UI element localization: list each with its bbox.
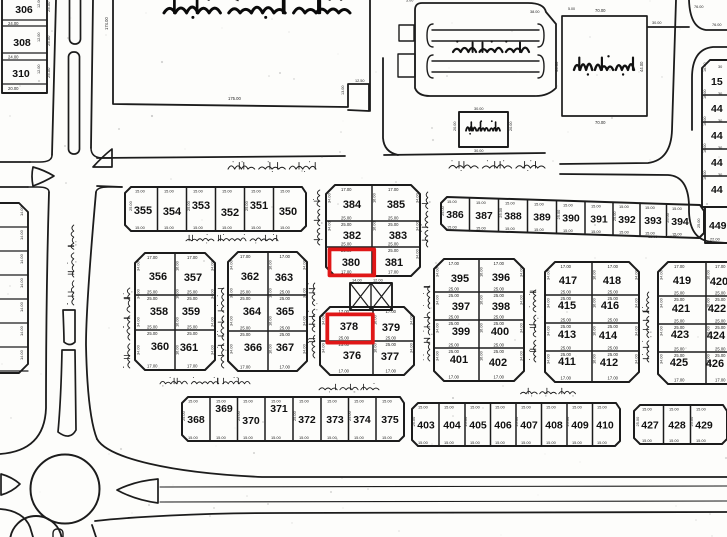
svg-text:15.00: 15.00 [243, 435, 254, 440]
svg-text:25.00: 25.00 [674, 353, 685, 358]
svg-text:25.00: 25.00 [128, 200, 133, 211]
svg-text:25.00: 25.00 [386, 342, 397, 347]
svg-text:401: 401 [450, 354, 468, 366]
svg-text:363: 363 [275, 272, 293, 284]
svg-text:376: 376 [343, 350, 361, 362]
svg-text:308: 308 [13, 37, 31, 49]
svg-text:34.00: 34.00 [302, 343, 307, 354]
svg-text:17.00: 17.00 [147, 364, 158, 369]
svg-text:16.00: 16.00 [592, 269, 597, 280]
svg-text:366: 366 [244, 342, 262, 354]
svg-text:30.00: 30.00 [474, 149, 484, 153]
svg-text:30.00: 30.00 [652, 21, 662, 25]
svg-text:30: 30 [718, 119, 722, 123]
svg-text:25.00: 25.00 [339, 336, 350, 341]
svg-text:16.00: 16.00 [175, 288, 180, 299]
svg-text:25.00: 25.00 [240, 326, 251, 331]
svg-text:368: 368 [187, 414, 205, 426]
svg-text:25.00: 25.00 [449, 315, 460, 320]
svg-text:374: 374 [353, 414, 371, 426]
svg-text:15.00: 15.00 [354, 399, 365, 404]
svg-text:15.00: 15.00 [645, 205, 656, 210]
svg-text:15.00: 15.00 [642, 438, 653, 443]
svg-text:25.00: 25.00 [689, 416, 694, 427]
svg-text:34.00: 34.00 [229, 287, 234, 298]
svg-text:16.00: 16.00 [703, 170, 707, 180]
svg-text:34.00: 34.00 [409, 314, 414, 325]
svg-text:25.00: 25.00 [347, 410, 352, 421]
svg-text:383: 383 [389, 230, 407, 242]
svg-text:30: 30 [718, 92, 722, 96]
svg-text:15.00: 15.00 [546, 405, 557, 410]
svg-text:310: 310 [12, 68, 30, 80]
svg-text:44: 44 [711, 103, 723, 115]
svg-text:421: 421 [672, 303, 690, 315]
svg-text:25.00: 25.00 [187, 296, 198, 301]
svg-text:34.00: 34.00 [546, 297, 551, 308]
svg-text:17.00: 17.00 [561, 376, 572, 381]
svg-text:15.00: 15.00 [299, 435, 310, 440]
svg-text:17.00: 17.00 [280, 365, 291, 370]
svg-text:17.00: 17.00 [608, 264, 619, 269]
svg-text:395: 395 [451, 273, 469, 285]
svg-text:34.00: 34.00 [302, 315, 307, 326]
svg-text:34.00: 34.00 [634, 353, 639, 364]
svg-text:76.00: 76.00 [712, 23, 722, 27]
svg-text:396: 396 [492, 272, 510, 284]
svg-text:359: 359 [182, 306, 200, 318]
svg-text:22.00: 22.00 [710, 237, 721, 242]
svg-text:17.00: 17.00 [449, 375, 460, 380]
svg-text:25.00: 25.00 [187, 290, 198, 295]
svg-text:12.00: 12.00 [37, 32, 41, 42]
svg-text:417: 417 [559, 275, 577, 287]
svg-text:25.00: 25.00 [411, 416, 416, 427]
svg-text:44.00: 44.00 [639, 61, 644, 72]
svg-text:24.00: 24.00 [8, 21, 19, 26]
svg-text:14.00: 14.00 [19, 301, 24, 312]
svg-text:25.00: 25.00 [147, 290, 158, 295]
svg-text:25.00: 25.00 [147, 331, 158, 336]
svg-text:17.00: 17.00 [386, 309, 397, 314]
svg-text:34.00: 34.00 [435, 322, 440, 333]
svg-text:14.00: 14.00 [352, 278, 363, 283]
svg-text:16.00: 16.00 [706, 325, 711, 336]
svg-text:34.00: 34.00 [519, 322, 524, 333]
svg-text:25.00: 25.00 [292, 410, 297, 421]
svg-text:25.00: 25.00 [498, 207, 503, 218]
svg-text:25.00: 25.00 [341, 216, 352, 221]
svg-text:15.00: 15.00 [251, 225, 262, 230]
svg-text:15.00: 15.00 [444, 440, 455, 445]
svg-text:377: 377 [381, 351, 399, 363]
svg-text:15.00: 15.00 [470, 405, 481, 410]
svg-text:15.00: 15.00 [534, 227, 545, 232]
svg-text:34.00: 34.00 [327, 220, 332, 231]
svg-text:16.00: 16.00 [268, 343, 273, 354]
svg-text:362: 362 [241, 271, 259, 283]
svg-text:44.00: 44.00 [554, 61, 559, 72]
svg-text:25.00: 25.00 [449, 321, 460, 326]
svg-text:350: 350 [279, 206, 297, 218]
svg-text:17.00: 17.00 [715, 264, 726, 269]
svg-text:14.00: 14.00 [19, 277, 24, 288]
svg-text:369: 369 [215, 403, 233, 415]
svg-text:14.00: 14.00 [19, 325, 24, 336]
svg-text:25.00: 25.00 [388, 248, 399, 253]
svg-text:365: 365 [276, 306, 294, 318]
svg-text:15.00: 15.00 [327, 435, 338, 440]
svg-text:16.00: 16.00 [706, 269, 711, 280]
svg-text:34.00: 34.00 [659, 269, 664, 280]
svg-text:16.00: 16.00 [706, 353, 711, 364]
svg-text:449: 449 [709, 220, 727, 232]
svg-text:17.00: 17.00 [674, 378, 685, 383]
svg-text:358: 358 [150, 306, 168, 318]
svg-text:34.00: 34.00 [136, 316, 141, 327]
svg-text:25.00: 25.00 [635, 416, 640, 427]
svg-text:25.00: 25.00 [561, 324, 572, 329]
svg-text:25.00: 25.00 [463, 416, 468, 427]
svg-text:356: 356 [149, 271, 167, 283]
svg-text:15.00: 15.00 [135, 225, 146, 230]
svg-text:25.00: 25.00 [280, 326, 291, 331]
svg-text:25.00: 25.00 [388, 242, 399, 247]
svg-text:390: 390 [562, 212, 580, 224]
svg-text:15.00: 15.00 [216, 435, 227, 440]
svg-text:15.00: 15.00 [619, 230, 630, 235]
svg-text:34.00: 34.00 [415, 248, 420, 259]
svg-text:379: 379 [382, 322, 400, 334]
svg-text:427: 427 [641, 420, 659, 432]
svg-text:34.00: 34.00 [519, 350, 524, 361]
svg-text:423: 423 [671, 329, 689, 341]
svg-text:25.00: 25.00 [494, 293, 505, 298]
svg-text:387: 387 [475, 210, 493, 222]
svg-text:16.00: 16.00 [706, 297, 711, 308]
svg-text:16.00: 16.00 [703, 62, 707, 72]
svg-text:15.00: 15.00 [222, 225, 233, 230]
svg-text:16.00: 16.00 [592, 297, 597, 308]
svg-text:378: 378 [340, 321, 358, 333]
svg-text:34.00: 34.00 [136, 260, 141, 271]
svg-text:15.00: 15.00 [418, 440, 429, 445]
svg-text:25.00: 25.00 [715, 347, 726, 352]
svg-text:17.00: 17.00 [608, 376, 619, 381]
svg-text:15.00: 15.00 [505, 226, 516, 231]
svg-text:15.00: 15.00 [188, 399, 199, 404]
svg-text:15.00: 15.00 [572, 440, 583, 445]
svg-text:17.00: 17.00 [339, 369, 350, 374]
svg-text:34.00: 34.00 [415, 192, 420, 203]
svg-text:14.00: 14.00 [19, 229, 24, 240]
svg-text:12.50: 12.50 [355, 79, 365, 83]
svg-text:25.00: 25.00 [494, 315, 505, 320]
svg-text:25.00: 25.00 [715, 353, 726, 358]
svg-text:13.00: 13.00 [341, 85, 345, 95]
svg-text:15.00: 15.00 [271, 399, 282, 404]
svg-text:375: 375 [381, 414, 399, 426]
svg-text:16.00: 16.00 [703, 89, 707, 99]
svg-text:306: 306 [15, 4, 33, 16]
svg-text:34.00: 34.00 [229, 259, 234, 270]
svg-text:370: 370 [242, 415, 260, 427]
svg-text:14.00: 14.00 [19, 253, 24, 264]
svg-text:34.00: 34.00 [321, 314, 326, 325]
svg-text:20.00: 20.00 [8, 86, 19, 91]
svg-text:25.00: 25.00 [674, 297, 685, 302]
svg-text:17.00: 17.00 [147, 255, 158, 260]
svg-text:25.00: 25.00 [608, 318, 619, 323]
svg-text:15.00: 15.00 [505, 201, 516, 206]
svg-text:15.00: 15.00 [696, 438, 707, 443]
svg-text:409: 409 [571, 420, 589, 432]
svg-text:407: 407 [520, 420, 538, 432]
svg-text:372: 372 [298, 414, 316, 426]
svg-text:16.00: 16.00 [372, 220, 377, 231]
svg-text:17.00: 17.00 [494, 261, 505, 266]
svg-text:25.00: 25.00 [440, 205, 445, 216]
svg-text:17.00: 17.00 [674, 264, 685, 269]
svg-text:25.00: 25.00 [561, 296, 572, 301]
svg-text:16.00: 16.00 [175, 344, 180, 355]
svg-text:25.00: 25.00 [280, 332, 291, 337]
svg-text:17.00: 17.00 [449, 261, 460, 266]
svg-text:34.00: 34.00 [321, 342, 326, 353]
svg-text:15.00: 15.00 [164, 225, 175, 230]
svg-text:34.00: 34.00 [302, 287, 307, 298]
svg-text:392: 392 [618, 214, 636, 226]
svg-text:25.00: 25.00 [665, 212, 670, 223]
svg-text:25.00: 25.00 [449, 343, 460, 348]
svg-text:15.00: 15.00 [669, 407, 680, 412]
svg-text:25.00: 25.00 [674, 291, 685, 296]
svg-text:357: 357 [184, 272, 202, 284]
svg-text:34.00: 34.00 [435, 350, 440, 361]
svg-text:16.00: 16.00 [592, 353, 597, 364]
svg-text:25.00: 25.00 [240, 290, 251, 295]
svg-text:17.00: 17.00 [715, 378, 726, 383]
svg-text:34.00: 34.00 [229, 343, 234, 354]
svg-text:25.00: 25.00 [561, 352, 572, 357]
svg-text:15.00: 15.00 [216, 399, 227, 404]
svg-text:16.00: 16.00 [372, 192, 377, 203]
svg-text:15.00: 15.00 [597, 405, 608, 410]
svg-text:14.00: 14.00 [19, 205, 24, 216]
svg-text:419: 419 [673, 275, 691, 287]
svg-text:25.00: 25.00 [240, 332, 251, 337]
svg-text:389: 389 [533, 212, 551, 224]
svg-text:15.00: 15.00 [418, 405, 429, 410]
svg-text:352: 352 [221, 207, 239, 219]
svg-text:25.00: 25.00 [244, 200, 249, 211]
svg-text:25.00: 25.00 [697, 218, 701, 228]
svg-text:25.00: 25.00 [608, 290, 619, 295]
svg-text:15.00: 15.00 [193, 225, 204, 230]
svg-text:15.00: 15.00 [563, 202, 574, 207]
svg-text:25.00: 25.00 [494, 321, 505, 326]
svg-text:16.00: 16.00 [175, 316, 180, 327]
svg-text:15.00: 15.00 [222, 189, 233, 194]
svg-text:15.00: 15.00 [534, 202, 545, 207]
svg-text:25.00: 25.00 [494, 343, 505, 348]
svg-text:25.00: 25.00 [715, 325, 726, 330]
svg-text:367: 367 [276, 342, 294, 354]
svg-text:25.00: 25.00 [186, 200, 191, 211]
svg-text:44: 44 [711, 130, 723, 142]
svg-text:25.00: 25.00 [715, 297, 726, 302]
svg-text:411: 411 [558, 356, 576, 368]
svg-text:17.00: 17.00 [187, 364, 198, 369]
svg-text:15.00: 15.00 [591, 229, 602, 234]
svg-text:14.00: 14.00 [19, 349, 24, 360]
svg-text:17.00: 17.00 [386, 369, 397, 374]
svg-text:25.00: 25.00 [187, 331, 198, 336]
svg-text:34.00: 34.00 [210, 260, 215, 271]
svg-text:16.00: 16.00 [592, 325, 597, 336]
svg-text:25.00: 25.00 [674, 347, 685, 352]
svg-text:386: 386 [446, 209, 464, 221]
svg-text:17.00: 17.00 [561, 264, 572, 269]
svg-text:380: 380 [342, 257, 360, 269]
svg-text:393: 393 [644, 215, 662, 227]
svg-text:16.00: 16.00 [268, 315, 273, 326]
svg-text:15.00: 15.00 [521, 405, 532, 410]
svg-text:34.00: 34.00 [634, 325, 639, 336]
svg-text:15: 15 [711, 76, 723, 88]
svg-text:17.00: 17.00 [341, 187, 352, 192]
svg-text:25.00: 25.00 [561, 318, 572, 323]
svg-text:70.00: 70.00 [595, 120, 606, 125]
svg-text:25.00: 25.00 [181, 410, 186, 421]
svg-text:354: 354 [163, 206, 182, 218]
svg-text:15.00: 15.00 [521, 440, 532, 445]
svg-text:15.00: 15.00 [648, 235, 658, 239]
svg-text:24.00: 24.00 [8, 55, 19, 60]
svg-text:404: 404 [443, 420, 461, 432]
svg-text:16.00: 16.00 [479, 294, 484, 305]
svg-text:25.00: 25.00 [147, 325, 158, 330]
svg-text:25.00: 25.00 [556, 209, 561, 220]
svg-text:15.00: 15.00 [354, 435, 365, 440]
svg-text:408: 408 [545, 420, 563, 432]
svg-text:25.00: 25.00 [147, 296, 158, 301]
svg-text:16.00: 16.00 [175, 260, 180, 271]
svg-text:25.00: 25.00 [715, 319, 726, 324]
svg-text:399: 399 [452, 326, 470, 338]
svg-text:34.00: 34.00 [519, 266, 524, 277]
svg-text:34.00: 34.00 [546, 269, 551, 280]
svg-text:25.00: 25.00 [608, 352, 619, 357]
svg-text:15.00: 15.00 [164, 189, 175, 194]
svg-text:44: 44 [711, 184, 723, 196]
svg-text:30: 30 [718, 65, 722, 69]
svg-text:30: 30 [718, 173, 722, 177]
svg-text:418: 418 [603, 275, 621, 287]
svg-text:17.00: 17.00 [187, 255, 198, 260]
svg-text:38.00: 38.00 [530, 10, 540, 14]
svg-text:15.00: 15.00 [546, 440, 557, 445]
svg-text:12.00: 12.00 [37, 64, 41, 74]
svg-text:25.00: 25.00 [561, 346, 572, 351]
svg-text:25.00: 25.00 [240, 296, 251, 301]
svg-text:15.00: 15.00 [476, 225, 487, 230]
svg-text:20.00: 20.00 [453, 121, 457, 131]
svg-text:25.00: 25.00 [236, 410, 241, 421]
svg-text:422: 422 [708, 303, 726, 315]
svg-text:34.00: 34.00 [519, 294, 524, 305]
svg-text:15.00: 15.00 [251, 189, 262, 194]
svg-text:15.00: 15.00 [572, 405, 583, 410]
svg-text:394: 394 [671, 216, 689, 228]
svg-text:25.00: 25.00 [341, 242, 352, 247]
svg-text:34.00: 34.00 [136, 344, 141, 355]
svg-text:25.00: 25.00 [449, 293, 460, 298]
svg-text:25.00: 25.00 [608, 346, 619, 351]
svg-text:25.00: 25.00 [608, 324, 619, 329]
svg-text:25.00: 25.00 [388, 216, 399, 221]
svg-text:15.00: 15.00 [470, 440, 481, 445]
svg-text:428: 428 [668, 420, 686, 432]
svg-text:388: 388 [504, 211, 522, 223]
svg-text:25.00: 25.00 [46, 1, 51, 12]
svg-text:34.00: 34.00 [327, 192, 332, 203]
svg-text:34.00: 34.00 [136, 288, 141, 299]
svg-text:403: 403 [417, 420, 435, 432]
svg-text:15.00: 15.00 [447, 199, 458, 204]
svg-text:15.00: 15.00 [642, 407, 653, 412]
svg-text:17.00: 17.00 [240, 254, 251, 259]
svg-text:25.00: 25.00 [388, 222, 399, 227]
svg-text:17.00: 17.00 [388, 187, 399, 192]
svg-text:34.00: 34.00 [229, 315, 234, 326]
svg-text:34.00: 34.00 [634, 269, 639, 280]
svg-text:15.00: 15.00 [280, 225, 291, 230]
svg-text:25.00: 25.00 [674, 319, 685, 324]
svg-text:15.00: 15.00 [188, 435, 199, 440]
svg-text:25.00: 25.00 [494, 349, 505, 354]
svg-text:25.00: 25.00 [674, 325, 685, 330]
svg-text:15.00: 15.00 [495, 405, 506, 410]
svg-text:415: 415 [558, 300, 576, 312]
svg-text:429: 429 [695, 420, 713, 432]
svg-text:382: 382 [343, 230, 361, 242]
svg-text:15.00: 15.00 [135, 189, 146, 194]
svg-text:44: 44 [711, 157, 723, 169]
svg-text:34.00: 34.00 [210, 344, 215, 355]
svg-text:34.00: 34.00 [409, 342, 414, 353]
svg-text:30: 30 [718, 146, 722, 150]
svg-text:402: 402 [489, 357, 507, 369]
svg-text:25.00: 25.00 [341, 222, 352, 227]
svg-text:34.00: 34.00 [659, 325, 664, 336]
svg-text:15.00: 15.00 [444, 405, 455, 410]
svg-text:17.00: 17.00 [280, 254, 291, 259]
svg-text:15.00: 15.00 [382, 399, 393, 404]
svg-text:16.00: 16.00 [479, 266, 484, 277]
svg-text:353: 353 [192, 200, 210, 212]
svg-text:174.00: 174.00 [104, 17, 109, 30]
svg-text:405: 405 [469, 420, 487, 432]
svg-text:360: 360 [151, 341, 169, 353]
svg-text:15.00: 15.00 [563, 228, 574, 233]
svg-text:5.00: 5.00 [568, 7, 575, 11]
svg-text:15.00: 15.00 [193, 189, 204, 194]
svg-text:355: 355 [134, 205, 152, 217]
svg-text:25.00: 25.00 [494, 287, 505, 292]
svg-text:385: 385 [387, 199, 405, 211]
svg-text:25.00: 25.00 [565, 416, 570, 427]
